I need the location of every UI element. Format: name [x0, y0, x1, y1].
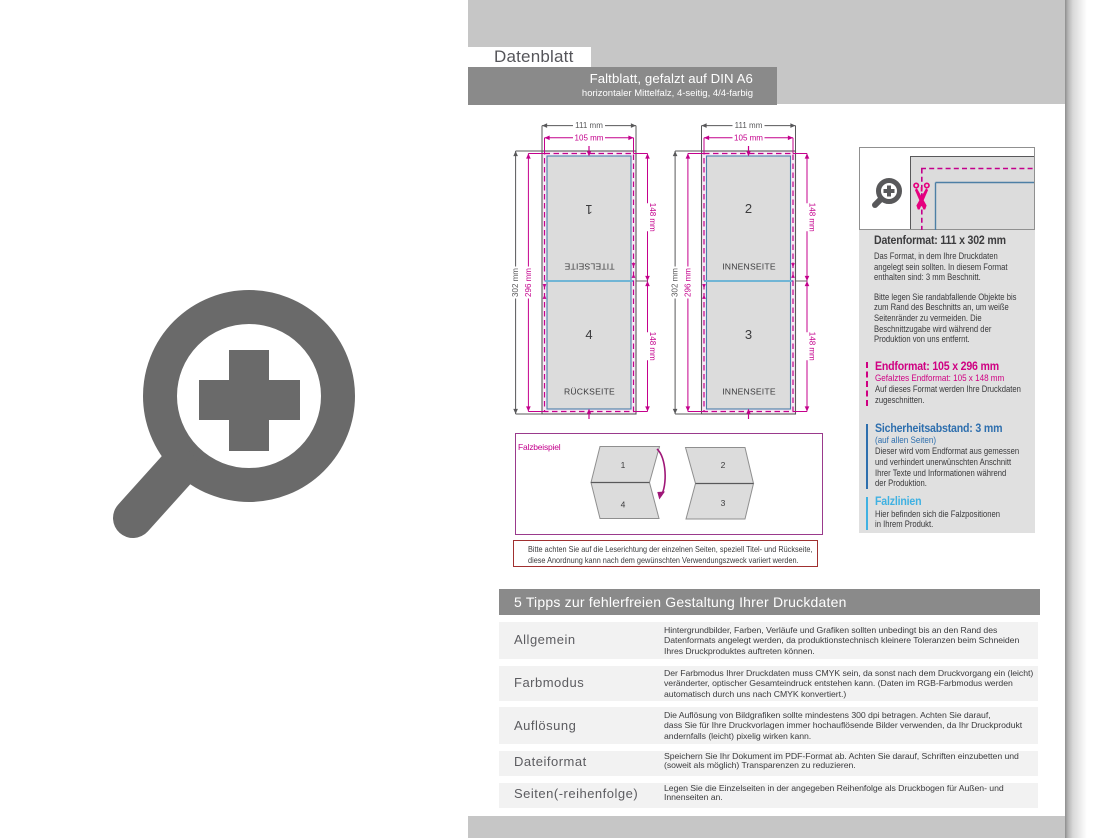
svg-text:105 mm: 105 mm: [734, 133, 763, 142]
svg-text:4: 4: [621, 500, 626, 510]
svg-text:1: 1: [621, 460, 626, 470]
svg-text:148 mm: 148 mm: [808, 203, 817, 232]
svg-text:4: 4: [585, 327, 592, 342]
svg-text:TITELSEITE: TITELSEITE: [564, 262, 614, 272]
svg-text:111 mm: 111 mm: [575, 121, 603, 130]
svg-text:302 mm: 302 mm: [671, 268, 680, 297]
svg-text:2: 2: [721, 460, 726, 470]
svg-text:1: 1: [585, 202, 592, 217]
svg-text:111 mm: 111 mm: [735, 121, 763, 130]
svg-text:105 mm: 105 mm: [575, 133, 604, 142]
svg-text:296 mm: 296 mm: [524, 268, 533, 297]
svg-text:148 mm: 148 mm: [648, 203, 657, 232]
svg-text:302 mm: 302 mm: [511, 268, 520, 297]
svg-text:296 mm: 296 mm: [684, 268, 693, 297]
svg-text:148 mm: 148 mm: [808, 332, 817, 361]
svg-text:2: 2: [745, 201, 752, 216]
svg-text:3: 3: [745, 327, 752, 342]
svg-text:INNENSEITE: INNENSEITE: [722, 262, 776, 272]
svg-text:INNENSEITE: INNENSEITE: [722, 387, 776, 397]
svg-text:RÜCKSEITE: RÜCKSEITE: [564, 387, 615, 397]
svg-text:148 mm: 148 mm: [648, 332, 657, 361]
svg-text:3: 3: [721, 498, 726, 508]
